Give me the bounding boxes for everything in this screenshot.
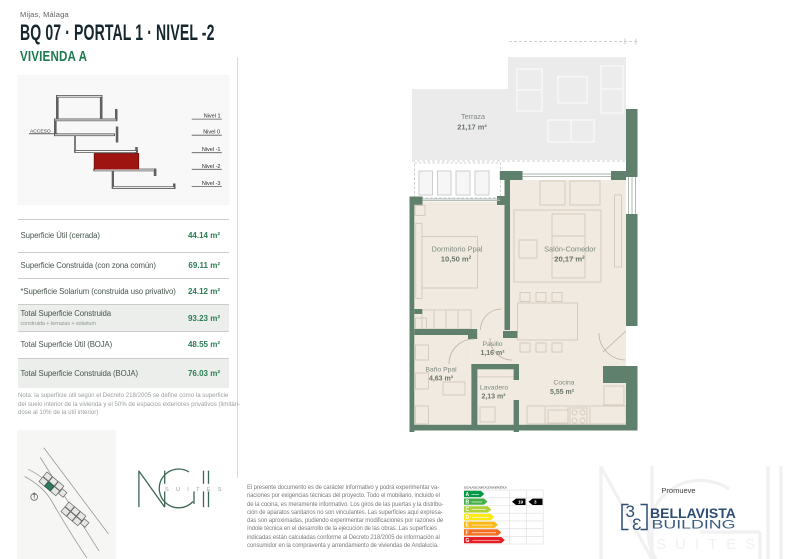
svg-text:3: 3 — [632, 515, 641, 534]
svg-text:ESCALA DE CALIFICACIÓN ENERGÉT: ESCALA DE CALIFICACIÓN ENERGÉTICA — [464, 485, 507, 490]
svg-text:Salón-Comedor: Salón-Comedor — [544, 245, 596, 254]
svg-text:D: D — [466, 515, 470, 521]
svg-text:Lavadero: Lavadero — [480, 385, 509, 392]
svg-text:BUILDING: BUILDING — [652, 520, 736, 532]
svg-text:F: F — [466, 530, 469, 536]
svg-text:10,50 m²: 10,50 m² — [441, 255, 472, 264]
svg-text:2,13 m²: 2,13 m² — [481, 394, 506, 401]
svg-text:C: C — [466, 507, 470, 513]
svg-text:21,17 m²: 21,17 m² — [457, 123, 487, 132]
svg-text:Nivel 1: Nivel 1 — [204, 114, 221, 120]
svg-text:G: G — [466, 538, 470, 544]
svg-text:ACCESO: ACCESO — [30, 128, 51, 134]
svg-text:Nivel -3: Nivel -3 — [202, 181, 221, 187]
svg-text:Nivel -2: Nivel -2 — [202, 164, 221, 170]
svg-text:BELLAVISTA: BELLAVISTA — [650, 505, 736, 521]
svg-text:5,55 m²: 5,55 m² — [550, 389, 575, 396]
svg-text:Nivel -1: Nivel -1 — [202, 147, 221, 153]
svg-text:Nivel 0: Nivel 0 — [203, 130, 220, 136]
svg-text:Baño Ppal: Baño Ppal — [425, 367, 457, 374]
svg-text:A: A — [466, 492, 470, 498]
svg-text:19: 19 — [518, 500, 524, 505]
svg-text:Terraza: Terraza — [461, 112, 485, 121]
svg-text:SUITES: SUITES — [656, 536, 764, 553]
svg-text:1,16 m²: 1,16 m² — [480, 350, 505, 357]
svg-text:4,63 m²: 4,63 m² — [429, 376, 454, 383]
svg-text:Pasillo: Pasillo — [482, 341, 502, 348]
svg-text:Cocina: Cocina — [553, 380, 574, 387]
svg-text:Dormitorio Ppal: Dormitorio Ppal — [432, 245, 483, 254]
svg-text:20,17 m²: 20,17 m² — [554, 255, 585, 264]
svg-text:3: 3 — [534, 500, 537, 505]
svg-text:B: B — [466, 500, 470, 506]
